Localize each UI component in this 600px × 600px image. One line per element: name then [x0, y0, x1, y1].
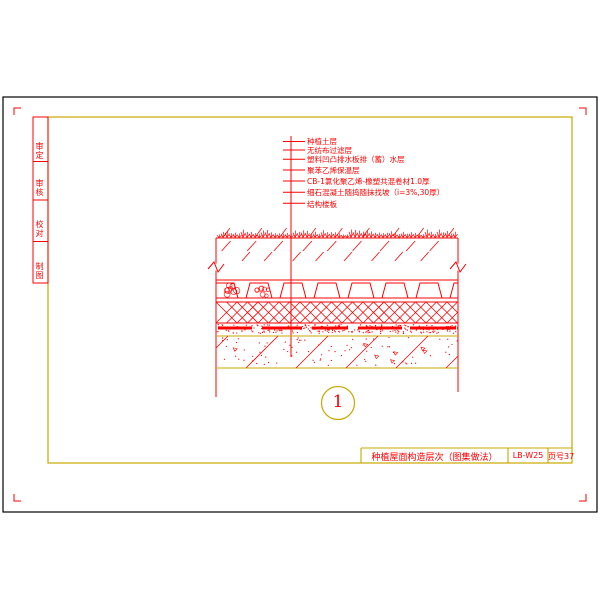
margin-field-label: 制图 — [34, 262, 45, 280]
detail-bubble-number: 1 — [330, 392, 346, 412]
section-break-marks — [208, 262, 466, 272]
insulation-crosshatch-layer — [216, 302, 458, 323]
layer-callout-ladder — [283, 136, 305, 357]
title-block-drawing-number: LB-W25 — [509, 451, 547, 460]
margin-field-label: 审核 — [34, 179, 45, 197]
title-block-title: 种植屋面构造层次（图集做法） — [363, 450, 506, 463]
callout-label-membrane: CB-1氯化聚乙烯-橡塑共混卷材1.0厚 — [307, 177, 430, 186]
concrete-slab-hatch — [216, 336, 458, 368]
drawing-canvas — [0, 0, 600, 600]
slab-outline — [216, 336, 458, 368]
margin-field-label: 校对 — [34, 220, 45, 238]
callout-label-drainage-board: 塑料凹凸排水板排（蓄）水层 — [307, 155, 405, 164]
callout-label-structural-slab: 结构楼板 — [307, 200, 337, 209]
grass-hatch-layer — [217, 228, 458, 238]
callout-label-filter-fabric: 无纺布过滤层 — [307, 146, 352, 155]
soil-hatch-layer — [222, 241, 439, 261]
callout-label-screed: 细石混凝土随捣随抹找坡（i=3%,30厚） — [307, 188, 444, 197]
drawing-sheet: 审定 审核 校对 制图 种植土层 无纺布过滤层 塑料凹凸排水板排（蓄）水层 聚苯… — [0, 0, 600, 600]
corner-trim-marks — [14, 108, 586, 501]
waterproof-membrane-layer — [216, 324, 459, 334]
callout-label-insulation: 聚苯乙烯保温层 — [307, 166, 360, 175]
drainage-board-layer — [216, 283, 458, 298]
title-block-page-number: 页号37 — [548, 451, 572, 462]
margin-field-label: 审定 — [34, 142, 45, 160]
